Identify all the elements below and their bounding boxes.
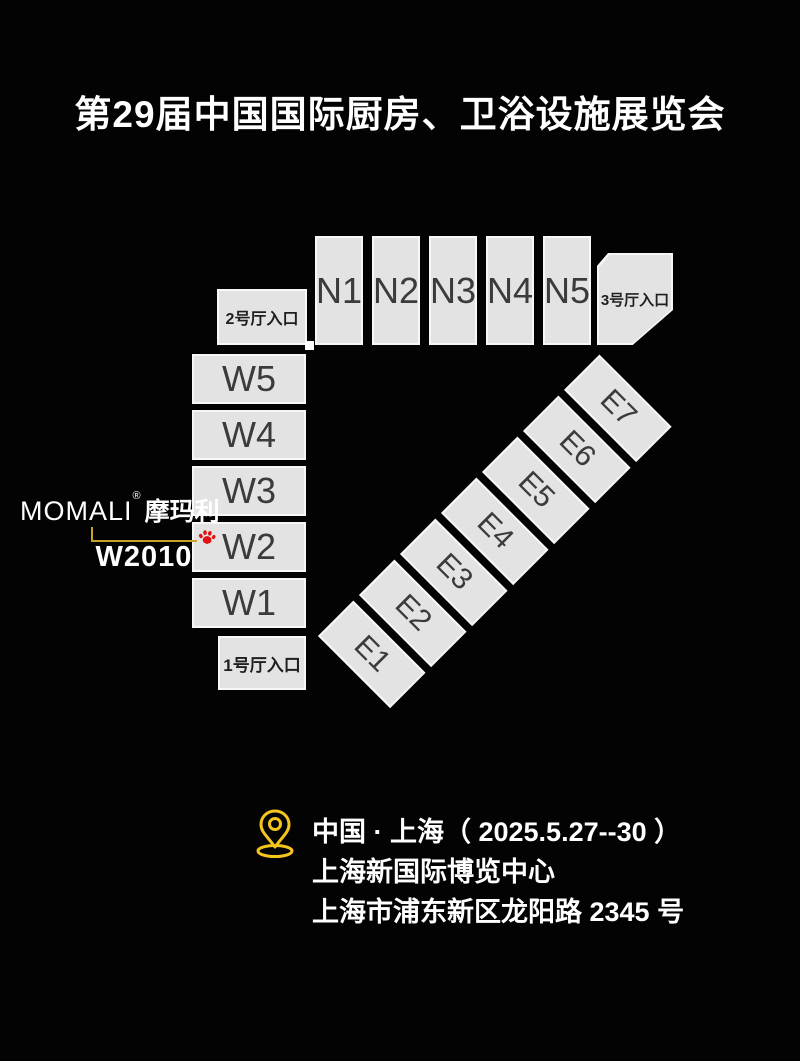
hall-w1: W1 xyxy=(192,578,306,628)
brand-logo: MOMALI®摩玛利 xyxy=(20,492,220,528)
entrance-hall2-label: 2号厅入口 xyxy=(226,305,299,329)
entrance-hall3-label: 3号厅入口 xyxy=(601,289,669,310)
hall-n3: N3 xyxy=(429,236,477,345)
paw-icon xyxy=(197,528,217,548)
hall-n1-label: N1 xyxy=(316,273,362,309)
hall-e1-label: E1 xyxy=(348,631,395,678)
registered-trademark-symbol: ® xyxy=(133,490,141,502)
hall-e4-label: E4 xyxy=(471,508,518,555)
hall-n4: N4 xyxy=(486,236,534,345)
page-title: 第29届中国国际厨房、卫浴设施展览会 xyxy=(0,84,800,138)
hall-w2-label: W2 xyxy=(222,529,276,565)
brand-latin-name: MOMALI xyxy=(20,496,133,526)
hall-w5: W5 xyxy=(192,354,306,404)
poster-background: 第29届中国国际厨房、卫浴设施展览会 N1 N2 N3 N4 N5 2号厅入口 … xyxy=(0,0,800,1061)
hall-n3-label: N3 xyxy=(430,273,476,309)
hall-e7-label: E7 xyxy=(594,385,641,432)
hall-w4-label: W4 xyxy=(222,417,276,453)
booth-number: W2010 xyxy=(91,541,197,574)
east-halls-strip: E1 E2 E3 E4 E5 E6 E7 xyxy=(318,355,672,709)
hall-e2-label: E2 xyxy=(389,590,436,637)
hall-w4: W4 xyxy=(192,410,306,460)
booth-leader-line-vertical xyxy=(91,527,93,541)
hall-n5: N5 xyxy=(543,236,591,345)
hall-e6-label: E6 xyxy=(553,426,600,473)
hall-w1-label: W1 xyxy=(222,585,276,621)
hall-e3-label: E3 xyxy=(430,549,477,596)
hall-w5-label: W5 xyxy=(222,361,276,397)
hall-n2-label: N2 xyxy=(373,273,419,309)
location-pin-icon xyxy=(253,806,297,860)
venue-name: 上海新国际博览中心 xyxy=(312,858,684,886)
venue-info: 中国 · 上海（ 2025.5.27--30 ） 上海新国际博览中心 上海市浦东… xyxy=(312,818,684,938)
venue-city-date: 中国 · 上海（ 2025.5.27--30 ） xyxy=(312,818,684,846)
hall-n4-label: N4 xyxy=(487,273,533,309)
hall-n1: N1 xyxy=(315,236,363,345)
entrance-hall3: 3号厅入口 xyxy=(597,253,673,345)
hall-n2: N2 xyxy=(372,236,420,345)
entrance-hall1-label: 1号厅入口 xyxy=(223,651,300,676)
brand-chinese-name: 摩玛利 xyxy=(145,498,220,526)
entrance-hall1: 1号厅入口 xyxy=(218,636,306,690)
entrance-hall2: 2号厅入口 xyxy=(217,289,307,345)
venue-address: 上海市浦东新区龙阳路 2345 号 xyxy=(312,898,684,926)
hall-e5-label: E5 xyxy=(512,467,559,514)
hall-w3-label: W3 xyxy=(222,473,276,509)
map-connector-square xyxy=(305,341,314,350)
hall-n5-label: N5 xyxy=(544,273,590,309)
